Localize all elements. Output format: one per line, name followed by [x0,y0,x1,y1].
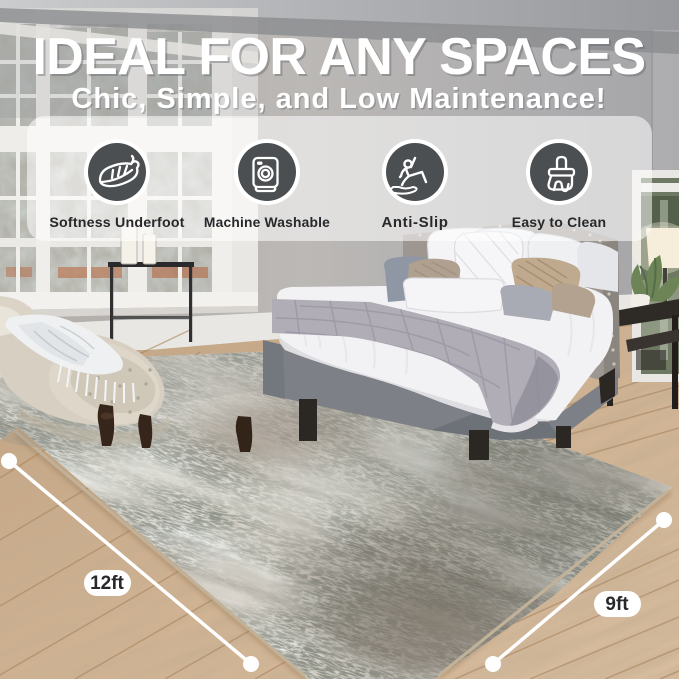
svg-text:IDEAL FOR ANY SPACES: IDEAL FOR ANY SPACES [32,28,645,86]
svg-text:9ft: 9ft [605,594,629,615]
svg-text:Machine Washable: Machine Washable [204,215,330,230]
svg-text:Softness Underfoot: Softness Underfoot [49,215,184,231]
svg-text:Chic, Simple, and Low Maintena: Chic, Simple, and Low Maintenance! [71,83,606,115]
svg-text:Easy to Clean: Easy to Clean [512,214,606,230]
svg-text:Anti-Slip: Anti-Slip [381,214,448,231]
svg-text:12ft: 12ft [90,573,124,594]
